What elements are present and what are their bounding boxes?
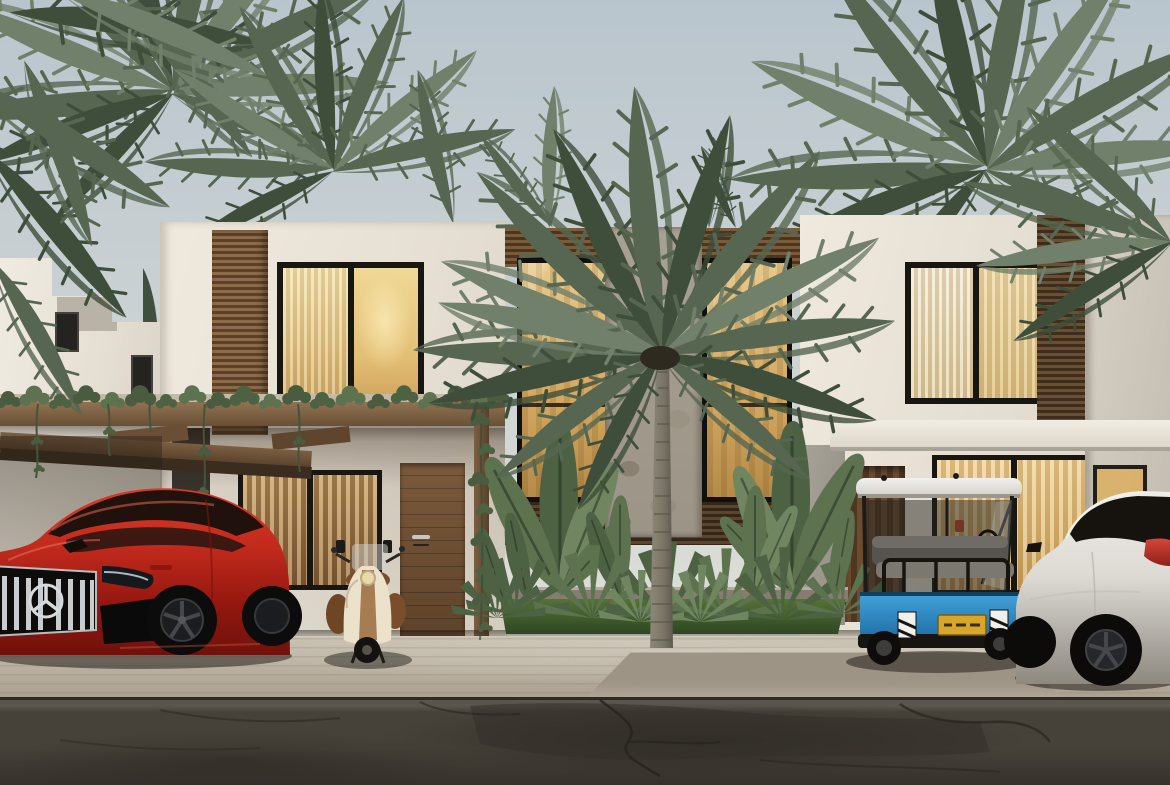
white-suv (1004, 491, 1170, 691)
palm-right-edge (956, 96, 1170, 371)
red-suv (0, 488, 302, 669)
scooter (324, 544, 412, 669)
foreground-layer (0, 0, 1170, 785)
left-edge-fronds (0, 52, 139, 429)
architectural-rendering (0, 0, 1170, 785)
road-cracks (60, 700, 1050, 776)
golf-cart (846, 473, 1030, 673)
